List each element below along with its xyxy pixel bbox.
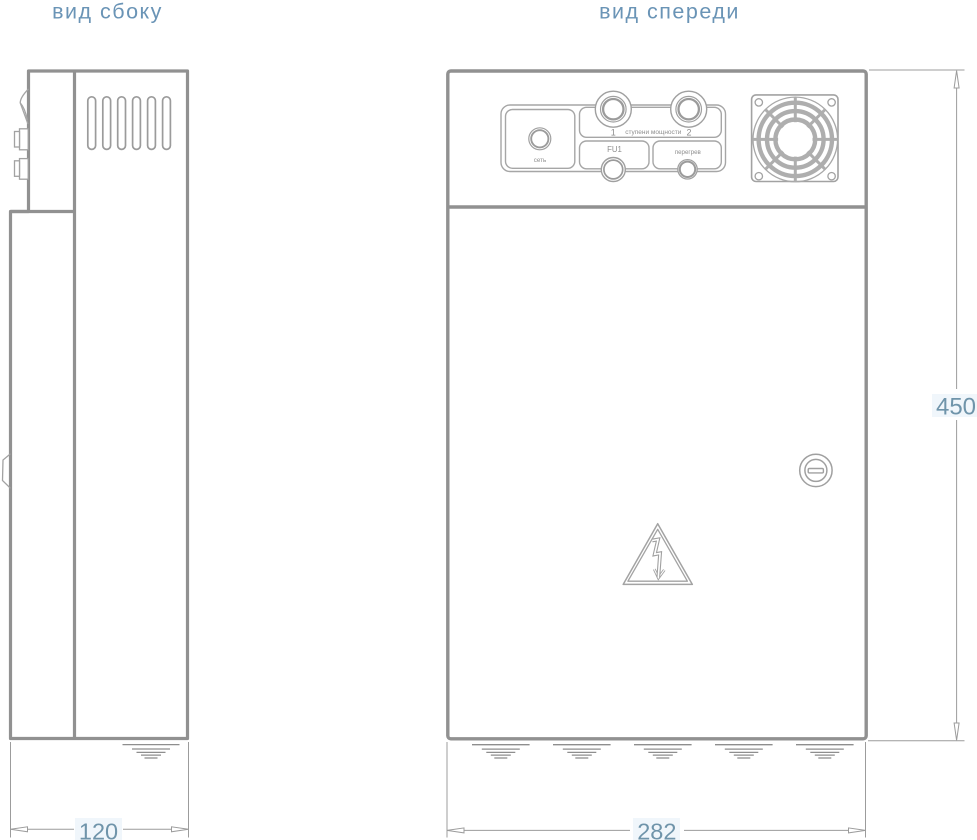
svg-text:120: 120 <box>79 819 118 840</box>
svg-text:282: 282 <box>637 819 676 840</box>
svg-text:1: 1 <box>611 128 616 138</box>
svg-text:450: 450 <box>936 394 976 421</box>
svg-text:вид сбоку: вид сбоку <box>52 0 163 24</box>
svg-text:перегрев: перегрев <box>675 149 702 156</box>
svg-text:сеть: сеть <box>534 157 546 164</box>
svg-text:вид спереди: вид спереди <box>599 0 740 24</box>
svg-text:2: 2 <box>686 128 691 138</box>
svg-text:FU1: FU1 <box>607 145 622 154</box>
svg-text:ступени мощности: ступени мощности <box>625 129 682 136</box>
